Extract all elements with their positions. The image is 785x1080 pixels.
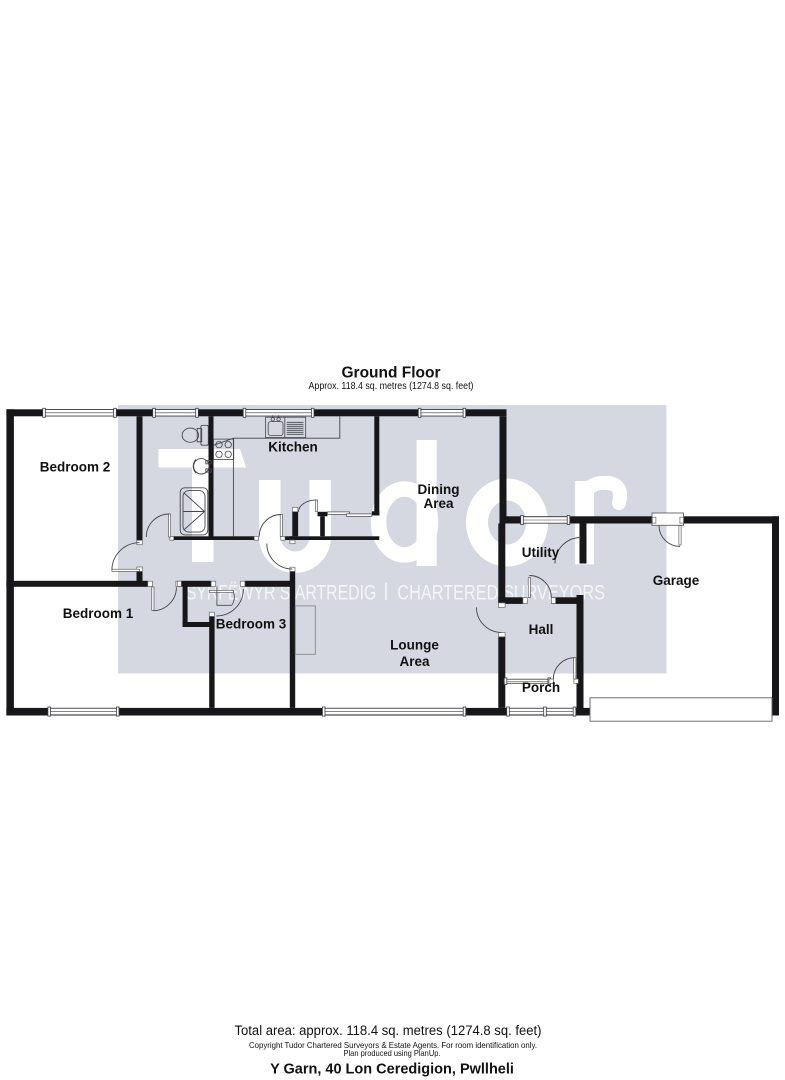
svg-text:Area: Area: [423, 496, 454, 511]
svg-text:Area: Area: [399, 654, 430, 669]
svg-text:Lounge: Lounge: [390, 638, 439, 653]
svg-text:Kitchen: Kitchen: [268, 440, 318, 455]
svg-text:Bedroom 2: Bedroom 2: [40, 460, 111, 475]
svg-text:Bedroom 1: Bedroom 1: [63, 606, 134, 621]
svg-text:Y Garn, 40 Lon Ceredigion, Pwl: Y Garn, 40 Lon Ceredigion, Pwllheli: [270, 1062, 514, 1078]
svg-text:Plan produced using PlanUp.: Plan produced using PlanUp.: [344, 1048, 441, 1058]
svg-text:Approx. 118.4 sq. metres (1274: Approx. 118.4 sq. metres (1274.8 sq. fee…: [309, 380, 474, 392]
svg-text:Garage: Garage: [653, 573, 700, 588]
svg-text:Bedroom 3: Bedroom 3: [216, 617, 287, 632]
svg-text:Total area: approx. 118.4 sq.: Total area: approx. 118.4 sq. metres (12…: [235, 1023, 542, 1038]
svg-text:Utility: Utility: [522, 545, 560, 560]
svg-text:Hall: Hall: [529, 622, 554, 637]
svg-text:Porch: Porch: [522, 680, 560, 695]
svg-text:Dining: Dining: [418, 482, 460, 497]
svg-text:Ground Floor: Ground Floor: [341, 365, 440, 382]
